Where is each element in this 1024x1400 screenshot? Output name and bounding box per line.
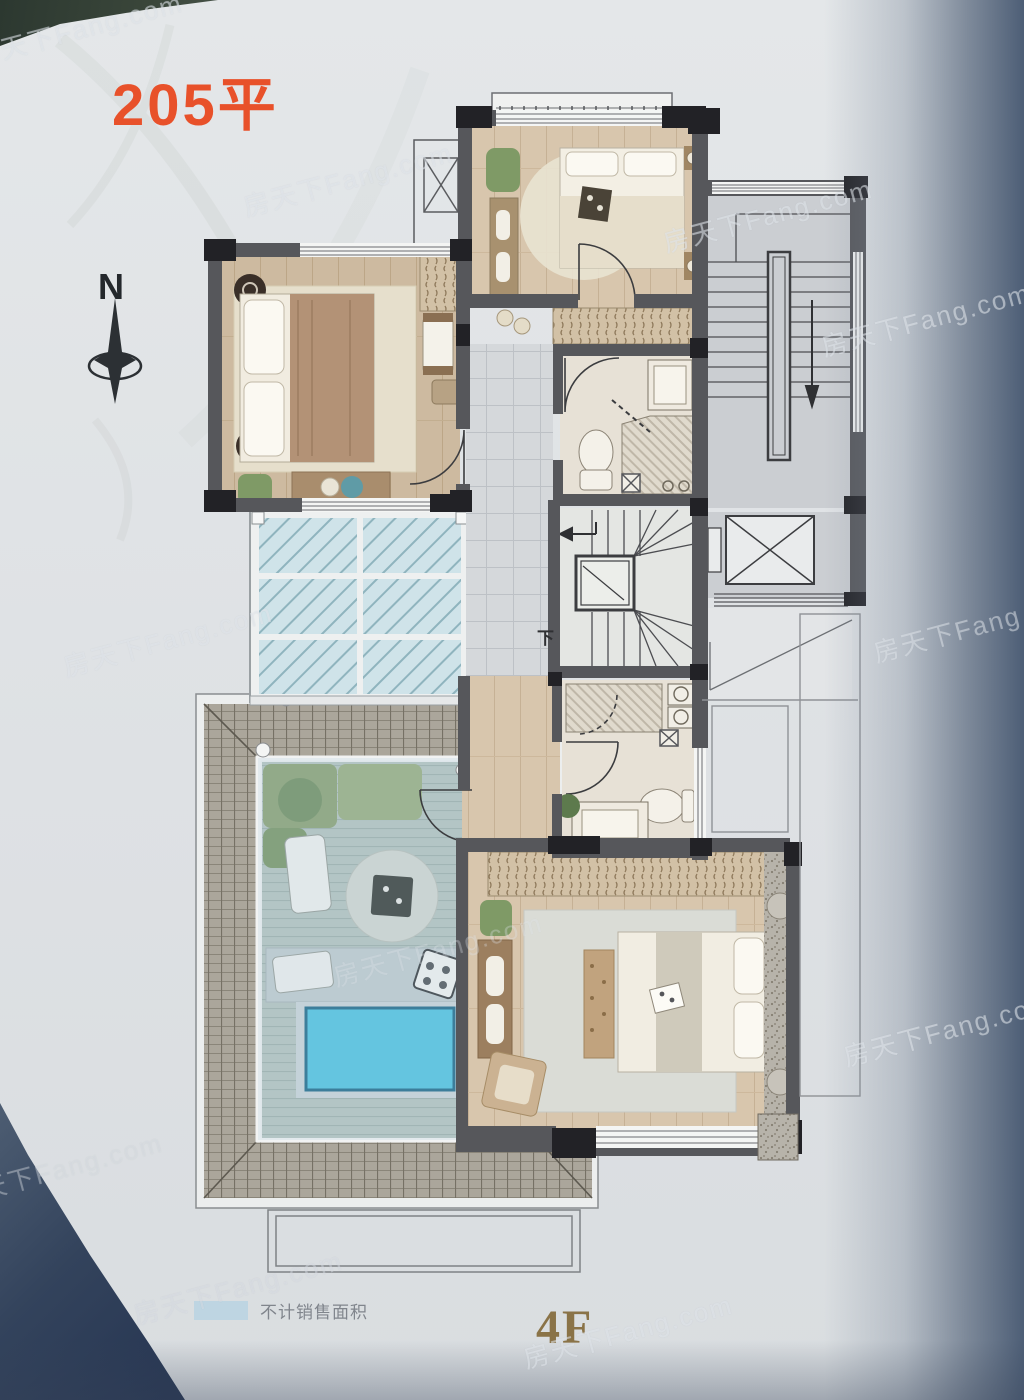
skylight <box>250 510 470 705</box>
hall-wood-floor <box>462 676 560 844</box>
floor-drain <box>660 730 678 746</box>
side-table <box>432 380 460 404</box>
elevator-door <box>708 528 721 572</box>
stone-pier <box>758 1114 798 1160</box>
balcony-railing <box>492 93 672 112</box>
ac-platform <box>414 140 462 248</box>
floor-drain <box>622 474 640 492</box>
page-bottom-shade <box>0 1340 1024 1400</box>
compass <box>89 298 141 404</box>
footprint-outline <box>268 1210 580 1272</box>
bed-tray <box>578 186 612 222</box>
bed-blanket <box>290 294 374 462</box>
bed-bench <box>584 950 614 1058</box>
legend-label: 不计销售面积 <box>260 1298 368 1323</box>
stair-rail <box>768 252 790 460</box>
stair-void <box>576 556 634 610</box>
area-label: 205平 <box>112 58 279 142</box>
window-left-bedroom-top <box>300 243 452 257</box>
legend: 不计销售面积 <box>194 1298 368 1323</box>
hallway <box>462 344 560 844</box>
legend-swatch <box>194 1301 248 1320</box>
window-top-bedroom <box>496 110 668 126</box>
roof-band-left <box>204 704 258 1198</box>
left-bedroom <box>218 253 466 504</box>
bathroom-lower <box>556 680 696 852</box>
stairs-down-label: 下 <box>537 624 554 649</box>
closet-band <box>553 308 700 344</box>
window-lower-bedroom <box>596 1126 760 1148</box>
plant <box>486 148 520 192</box>
bathroom-top <box>560 354 696 496</box>
wardrobe <box>488 852 768 896</box>
non-sale-overlay <box>258 758 480 1140</box>
window-bath-lower <box>694 748 706 844</box>
plant <box>480 900 512 936</box>
floor-label: 4F <box>536 1300 593 1355</box>
bench <box>423 316 453 374</box>
window-left-bedroom-bottom <box>302 498 450 512</box>
stair-internal <box>560 508 696 668</box>
bowl-decor <box>341 476 363 498</box>
compass-north-label: N <box>98 266 124 308</box>
toilet <box>579 430 613 474</box>
page-edge-shade <box>824 0 1024 1400</box>
page: 205平 N 下 不计销售面积 4F 房天下Fang.com 房天下Fang.c… <box>0 0 1024 1400</box>
lower-bedroom <box>462 850 796 1138</box>
